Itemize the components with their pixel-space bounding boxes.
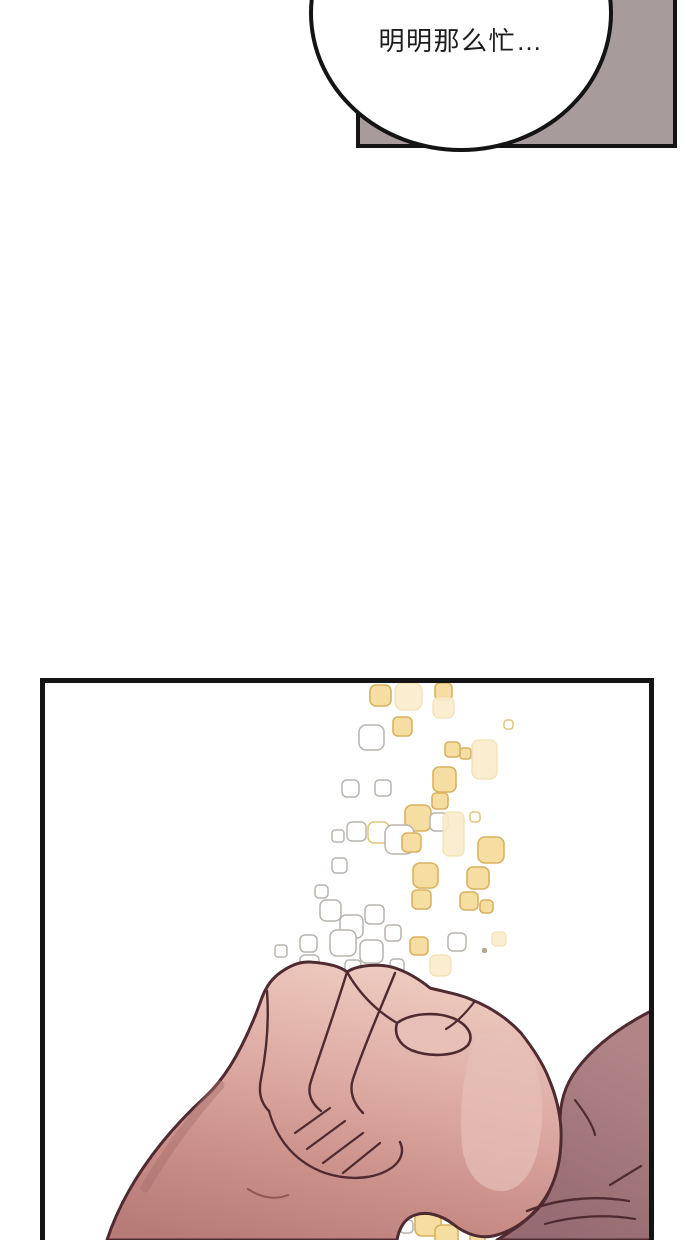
sparkle-particle xyxy=(300,935,317,952)
sparkle-particle xyxy=(470,812,480,822)
sparkle-particle xyxy=(472,740,497,779)
sparkle-particle xyxy=(460,892,478,910)
sparkle-particle xyxy=(412,890,431,909)
sparkle-particle xyxy=(443,812,464,856)
sparkle-particle xyxy=(393,717,412,736)
sparkle-particle xyxy=(365,905,384,924)
webtoon-page: 明明那么忙… xyxy=(0,0,690,1240)
hand-highlight xyxy=(461,1032,542,1191)
sparkle-particle xyxy=(478,837,504,863)
sparkle-particle xyxy=(395,683,422,710)
sparkle-particle xyxy=(332,830,344,842)
sparkle-particle xyxy=(320,900,341,921)
sparkle-particle xyxy=(433,697,454,718)
sparkle-particle xyxy=(433,767,456,792)
sparkle-particle xyxy=(413,863,438,888)
sparkle-particle xyxy=(385,925,401,941)
sparkle-particle xyxy=(430,955,451,976)
sparkle-particle xyxy=(370,685,391,706)
sparkle-particle xyxy=(359,725,384,750)
sparkle-particle xyxy=(482,948,487,953)
sparkle-particle xyxy=(492,932,506,946)
hands-illustration xyxy=(45,683,649,1240)
comic-panel xyxy=(40,678,654,1240)
sparkle-particle xyxy=(360,940,383,963)
sparkle-particle xyxy=(410,937,428,955)
sparkle-particle xyxy=(467,867,489,889)
sparkle-particle xyxy=(275,945,287,957)
sparkle-particle xyxy=(315,885,328,898)
sparkle-particle xyxy=(445,742,460,757)
sparkle-particle xyxy=(432,793,448,809)
sparkle-particle xyxy=(504,720,513,729)
sparkle-particle xyxy=(375,780,391,796)
sparkle-particle xyxy=(332,858,347,873)
sparkle-particle xyxy=(480,900,493,913)
sparkle-particle xyxy=(347,822,366,841)
sparkle-particle xyxy=(342,780,359,797)
sparkle-particle xyxy=(402,833,421,852)
sparkle-particle xyxy=(460,748,471,759)
sparkle-particle xyxy=(330,930,356,956)
speech-bubble-text: 明明那么忙… xyxy=(313,26,609,56)
sparkle-particle xyxy=(448,933,466,951)
sparkle-particle xyxy=(435,1225,458,1240)
